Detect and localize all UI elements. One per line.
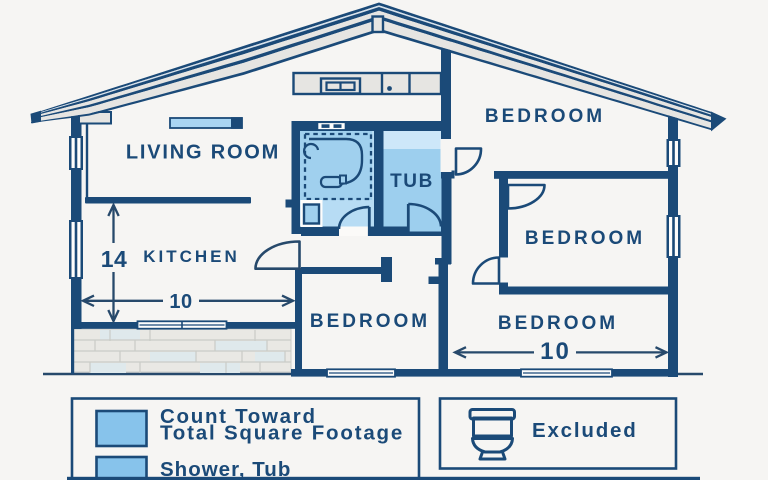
svg-text:Shower, Tub: Shower, Tub [160,458,291,480]
svg-text:10: 10 [540,338,571,365]
svg-text:TUB: TUB [390,171,434,192]
svg-text:BEDROOM: BEDROOM [485,106,605,127]
svg-text:LIVING ROOM: LIVING ROOM [126,142,280,164]
svg-text:BEDROOM: BEDROOM [498,313,618,334]
svg-text:Total Square Footage: Total Square Footage [160,422,404,445]
svg-text:KITCHEN: KITCHEN [143,247,240,266]
svg-text:BEDROOM: BEDROOM [525,228,645,249]
svg-text:14: 14 [101,246,128,272]
svg-text:10: 10 [169,291,192,313]
svg-text:BEDROOM: BEDROOM [310,311,430,332]
svg-text:Excluded: Excluded [532,419,638,442]
